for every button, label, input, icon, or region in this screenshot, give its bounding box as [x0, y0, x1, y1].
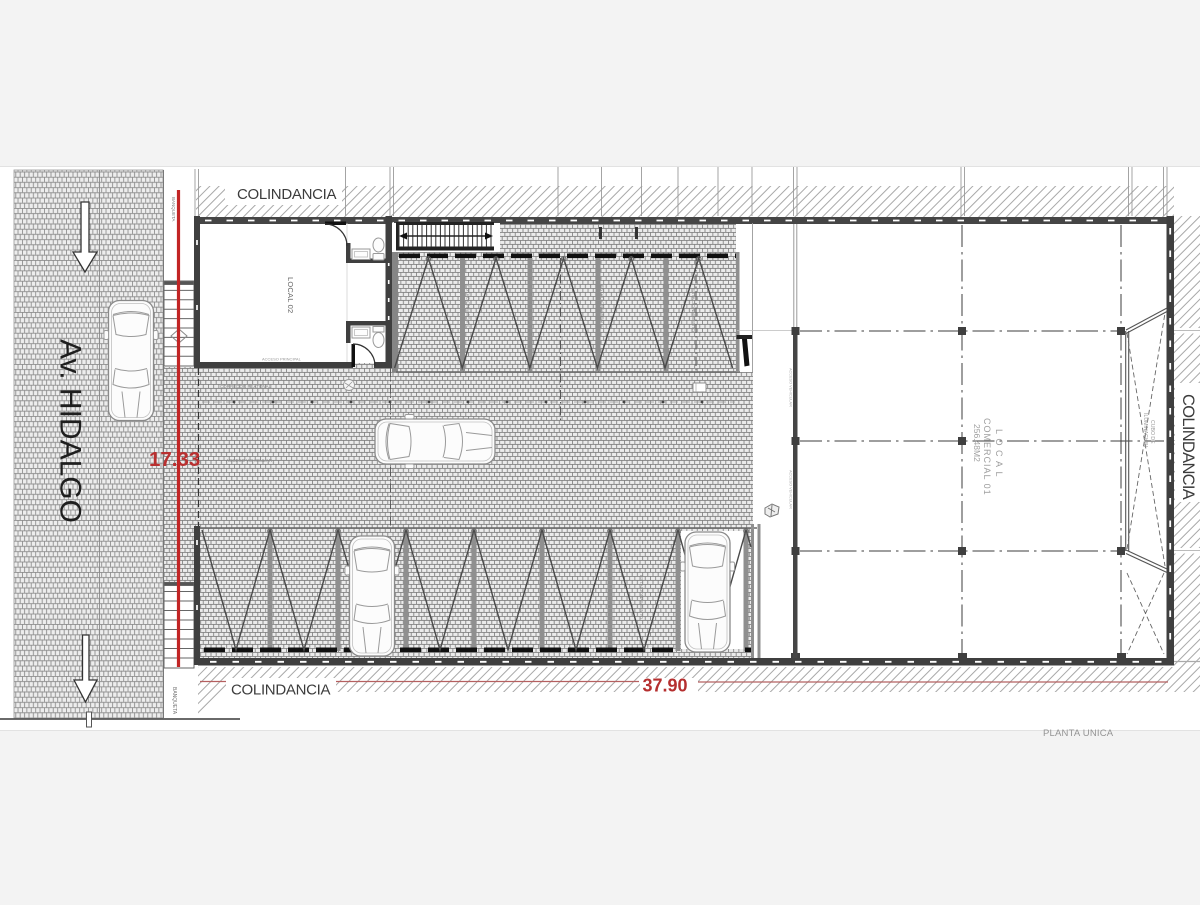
svg-text:ESTACIONAMIENTO: ESTACIONAMIENTO: [466, 285, 471, 329]
svg-text:ESTACIONAMIENTO: ESTACIONAMIENTO: [639, 575, 644, 619]
svg-text:ESTACIONAMIENTO: ESTACIONAMIENTO: [600, 285, 605, 329]
svg-text:37.90: 37.90: [643, 676, 688, 696]
svg-text:COMERCIAL 01: COMERCIAL 01: [982, 418, 992, 496]
svg-text:ACCESO PRINCIPAL: ACCESO PRINCIPAL: [262, 357, 302, 362]
svg-text:COLINDANCIA: COLINDANCIA: [1179, 394, 1197, 500]
svg-text:ACCESO VEHICULAR: ACCESO VEHICULAR: [789, 368, 793, 407]
svg-text:BANQUETA: BANQUETA: [171, 197, 176, 221]
svg-text:ACCESO VEHICULAR: ACCESO VEHICULAR: [789, 470, 793, 509]
svg-text:BANQUETA: BANQUETA: [171, 687, 177, 715]
svg-text:256.48M2: 256.48M2: [972, 424, 982, 462]
svg-text:COLINDANCIA: COLINDANCIA: [237, 186, 337, 203]
svg-text:COLINDANCIA: COLINDANCIA: [231, 682, 331, 699]
svg-text:Av. HIDALGO: Av. HIDALGO: [54, 339, 87, 523]
svg-text:PLANTA UNICA: PLANTA UNICA: [1043, 728, 1114, 739]
svg-text:LOCAL 02: LOCAL 02: [286, 277, 295, 313]
svg-text:17.33: 17.33: [149, 448, 200, 471]
svg-text:ESTACIONAMIENTO: ESTACIONAMIENTO: [691, 288, 696, 332]
svg-text:ILUMINACION: ILUMINACION: [1142, 413, 1148, 447]
svg-text:CORREDOR PEATONAL: CORREDOR PEATONAL: [220, 384, 272, 389]
svg-text:LOCAL: LOCAL: [994, 429, 1004, 481]
svg-text:ACCESO VEHICULAR: ACCESO VEHICULAR: [226, 458, 273, 463]
svg-text:CUBO DE: CUBO DE: [1149, 420, 1155, 444]
